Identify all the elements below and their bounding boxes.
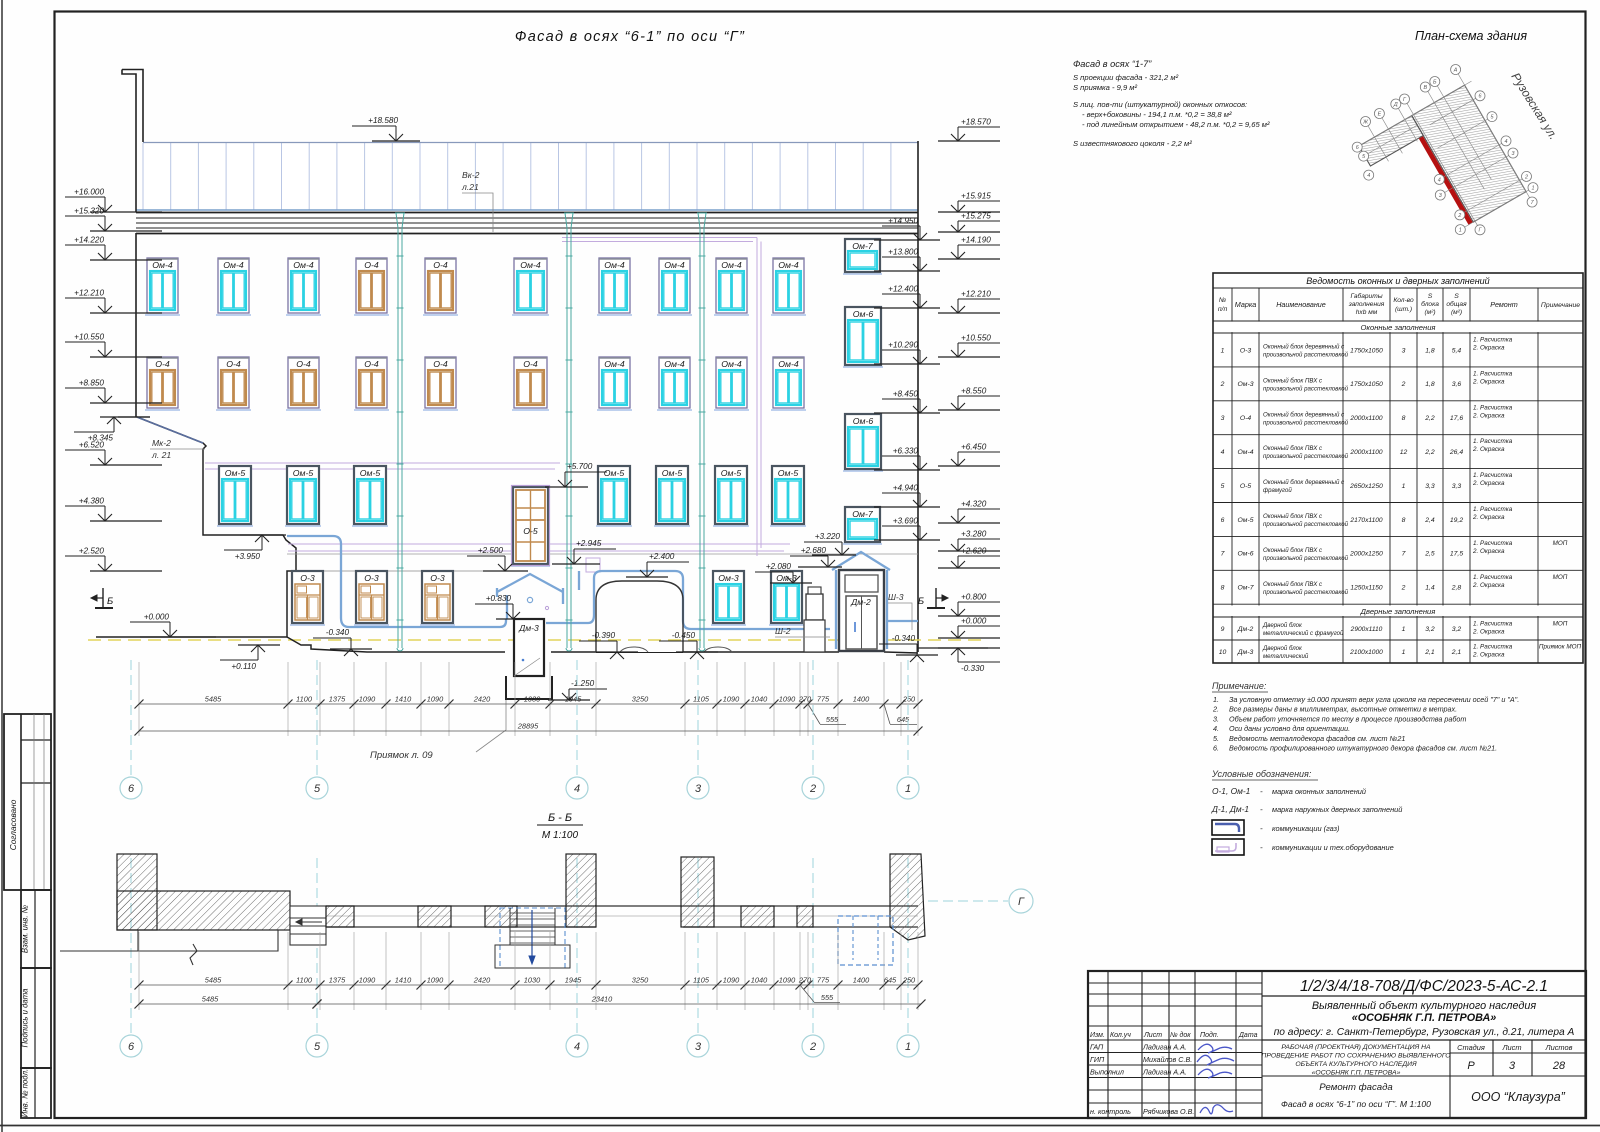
svg-text:1030: 1030 [524,695,541,704]
svg-text:Дата: Дата [1238,1032,1258,1039]
svg-text:+3.950: +3.950 [235,552,261,561]
svg-text:Р: Р [1467,1060,1475,1072]
svg-text:Ведомость оконных и дверных: Ведомость оконных и дверных заполнений [1306,276,1489,286]
svg-text:hхb мм: hхb мм [1356,309,1378,316]
svg-text:2: 2 [809,783,816,795]
svg-text:23410: 23410 [591,995,613,1004]
svg-text:Ом-7: Ом-7 [852,509,874,519]
svg-text:ГИП: ГИП [1090,1055,1105,1064]
svg-text:Оси даны условно для ориентаци: Оси даны условно для ориентации. [1229,724,1350,733]
svg-text:2. Окраска: 2. Окраска [1472,629,1505,636]
svg-text:- под линейным открытием: - под линейным открытием - 48,2 п.м. *0,… [1082,120,1270,129]
svg-text:1: 1 [1221,347,1225,354]
svg-text:Б: Б [1433,79,1437,85]
svg-text:Ш-3: Ш-3 [888,592,904,602]
svg-text:Примечание:: Примечание: [1212,681,1267,691]
svg-text:О-4: О-4 [226,359,241,369]
svg-text:26,4: 26,4 [1449,449,1463,456]
svg-text:ПРОВЕДЕНИЕ РАБОТ ПО СОХРАНЕНИЮ: ПРОВЕДЕНИЕ РАБОТ ПО СОХРАНЕНИЮ ВЫЯВЛЕННО… [1261,1053,1451,1060]
svg-text:Д: Д [1393,102,1398,108]
svg-text:3: 3 [1512,151,1515,157]
svg-text:О-1, Ом-1: О-1, Ом-1 [1212,786,1250,796]
svg-text:ООО “Клаузура”: ООО “Клаузура” [1471,1090,1566,1104]
svg-text:Д-1, Дм-1: Д-1, Дм-1 [1211,804,1249,814]
svg-text:Ремонт: Ремонт [1490,300,1518,309]
svg-text:2: 2 [1401,585,1406,592]
svg-text:произвольной расстекловкой: произвольной расстекловкой [1263,419,1349,426]
svg-text:Е: Е [1378,111,1382,117]
svg-text:Дверные заполнения: Дверные заполнения [1360,607,1436,616]
svg-text:+12.400: +12.400 [888,285,918,294]
svg-text:6: 6 [1221,517,1225,524]
svg-text:марка оконных заполнений: марка оконных заполнений [1272,787,1366,796]
svg-text:Ом-4: Ом-4 [152,260,173,270]
svg-text:Фасад в осях “6-1” по оси: Фасад в осях “6-1” по оси “Г”. М 1:100 [1281,1099,1431,1109]
svg-text:РАБОЧАЯ (ПРОЕКТНАЯ) ДОКУМЕНТАЦ: РАБОЧАЯ (ПРОЕКТНАЯ) ДОКУМЕНТАЦИЯ НА [1281,1044,1431,1051]
svg-text:1100: 1100 [296,976,313,985]
svg-text:Ремонт фасада: Ремонт фасада [1319,1082,1393,1093]
svg-text:2. Окраска: 2. Окраска [1472,514,1505,521]
svg-text:+14.950: +14.950 [888,217,918,226]
svg-text:1105: 1105 [693,976,710,985]
svg-text:фрамугой: фрамугой [1263,487,1292,494]
svg-text:1. Расчистка: 1. Расчистка [1473,621,1513,628]
svg-text:-: - [1260,843,1263,852]
svg-text:12: 12 [1400,449,1408,456]
svg-text:+6.330: +6.330 [893,447,919,456]
svg-text:Ведомость металлодекора фасадо: Ведомость металлодекора фасадов см. лист… [1229,734,1405,743]
svg-text:3: 3 [1509,1060,1516,1072]
svg-text:Дм-2: Дм-2 [1237,626,1254,633]
svg-text:Михайлов С.В.: Михайлов С.В. [1143,1055,1192,1064]
svg-text:+2.080: +2.080 [766,562,792,571]
svg-text:Дверной блок: Дверной блок [1262,622,1303,629]
svg-text:Ом-5: Ом-5 [662,468,683,478]
svg-text:Оконный блок деревянный с: Оконный блок деревянный с [1263,479,1344,486]
svg-text:3.: 3. [1213,714,1219,723]
svg-text:Приямок МОП: Приямок МОП [1539,644,1582,651]
svg-text:2.: 2. [1212,705,1219,714]
svg-text:2: 2 [1401,381,1406,388]
svg-text:2,4: 2,4 [1424,517,1435,524]
svg-text:5: 5 [314,1041,321,1053]
svg-text:А: А [1453,67,1458,73]
svg-text:2. Окраска: 2. Окраска [1472,548,1505,555]
svg-text:Лист: Лист [1501,1043,1521,1052]
svg-text:Дм-3: Дм-3 [1237,649,1254,656]
svg-text:1. Расчистка: 1. Расчистка [1473,644,1513,651]
svg-text:Взам. инв. №: Взам. инв. № [21,905,30,953]
svg-text:+18.580: +18.580 [368,116,398,125]
svg-text:Вк-2: Вк-2 [462,170,480,180]
svg-text:Оконный блок ПВХ с: Оконный блок ПВХ с [1263,445,1322,452]
svg-text:+4.380: +4.380 [79,497,105,506]
svg-text:3,3: 3,3 [1452,483,1462,490]
svg-text:+2.400: +2.400 [649,552,675,561]
svg-text:Фасад в осях “1-7”: Фасад в осях “1-7” [1073,59,1152,69]
svg-text:Ом-4: Ом-4 [604,359,625,369]
svg-text:3: 3 [1439,193,1442,199]
svg-text:2000х1100: 2000х1100 [1349,449,1382,456]
svg-text:1: 1 [905,783,911,795]
svg-text:Оконный блок ПВХ с: Оконный блок ПВХ с [1263,547,1322,554]
svg-text:+15.320: +15.320 [74,207,104,216]
svg-text:2. Окраска: 2. Окраска [1472,378,1505,385]
svg-text:5485: 5485 [205,695,222,704]
svg-text:+4.940: +4.940 [893,484,919,493]
svg-text:+6.450: +6.450 [961,443,987,452]
svg-text:Ом-6: Ом-6 [853,309,874,319]
svg-text:+8.850: +8.850 [79,379,105,388]
svg-text:1. Расчистка: 1. Расчистка [1473,506,1513,513]
svg-text:О-3: О-3 [300,573,315,583]
svg-text:3: 3 [695,1041,702,1053]
svg-text:2. Окраска: 2. Окраска [1472,582,1505,589]
svg-text:О-4: О-4 [364,260,379,270]
svg-text:6.: 6. [1213,744,1219,753]
svg-text:1: 1 [1402,649,1406,656]
svg-text:17,6: 17,6 [1450,415,1463,422]
svg-text:по адресу: г. Санкт-Петербург,: по адресу: г. Санкт-Петербург, Рузовская… [1274,1026,1575,1038]
svg-text:марка наружных дверных запо: марка наружных дверных заполнений [1272,805,1402,814]
svg-text:+2.500: +2.500 [478,546,504,555]
svg-text:План-схема здания: План-схема здания [1415,29,1527,43]
svg-text:3250: 3250 [632,976,649,985]
svg-text:+2.620: +2.620 [961,547,987,556]
svg-text:-0.340: -0.340 [326,628,350,637]
svg-text:3,6: 3,6 [1452,381,1462,388]
svg-text:1. Расчистка: 1. Расчистка [1473,438,1513,445]
svg-text:+5.700: +5.700 [567,462,593,471]
svg-text:28895: 28895 [517,722,539,731]
svg-text:S: S [1428,293,1433,300]
svg-text:-1.250: -1.250 [571,679,595,688]
svg-text:Мк-2: Мк-2 [152,438,171,448]
svg-text:775: 775 [817,976,830,985]
svg-text:1090: 1090 [779,695,796,704]
svg-text:Ом-4: Ом-4 [223,260,244,270]
svg-text:+3.280: +3.280 [961,530,987,539]
svg-text:+0.000: +0.000 [961,617,987,626]
svg-text:2420: 2420 [473,695,491,704]
svg-text:Ом-5: Ом-5 [293,468,314,478]
svg-text:+12.210: +12.210 [961,290,991,299]
svg-text:250: 250 [902,976,916,985]
svg-text:1090: 1090 [723,695,740,704]
svg-text:металлический: металлический [1263,653,1309,660]
svg-text:-: - [1260,824,1263,833]
svg-text:1030: 1030 [524,976,541,985]
svg-text:Ом-4: Ом-4 [721,260,742,270]
svg-text:+14.220: +14.220 [74,236,104,245]
svg-text:4: 4 [1367,173,1370,179]
svg-text:+10.550: +10.550 [961,334,991,343]
svg-text:металлический с фрамугой: металлический с фрамугой [1263,630,1344,637]
svg-text:Оконный блок ПВХ с: Оконный блок ПВХ с [1263,513,1322,520]
svg-text:5,4: 5,4 [1452,347,1462,354]
svg-text:(м²): (м²) [1451,309,1462,316]
svg-text:л.21: л.21 [461,182,479,192]
svg-text:1. Расчистка: 1. Расчистка [1473,337,1513,344]
svg-text:1750х1050: 1750х1050 [1350,381,1383,388]
svg-text:1: 1 [1402,483,1406,490]
svg-text:Подп.: Подп. [1200,1031,1219,1039]
svg-text:1250х1150: 1250х1150 [1350,585,1382,592]
svg-text:+15.915: +15.915 [961,192,991,201]
svg-text:1,8: 1,8 [1425,381,1435,388]
svg-text:блока: блока [1421,300,1439,308]
svg-text:1090: 1090 [723,976,740,985]
svg-text:2: 2 [809,1041,816,1053]
svg-text:1. Расчистка: 1. Расчистка [1473,370,1513,377]
svg-text:5485: 5485 [202,995,219,1004]
svg-text:О-4: О-4 [433,260,448,270]
svg-text:2: 2 [1457,213,1461,219]
svg-text:2,2: 2,2 [1424,415,1435,422]
svg-text:3: 3 [1221,415,1225,422]
svg-text:-0.450: -0.450 [672,631,696,640]
svg-text:Листов: Листов [1545,1043,1573,1052]
svg-text:О-3: О-3 [364,573,379,583]
svg-text:3,3: 3,3 [1425,483,1435,490]
svg-text:2. Окраска: 2. Окраска [1472,480,1505,487]
svg-text:775: 775 [817,695,830,704]
svg-text:1090: 1090 [359,976,376,985]
svg-text:Ом-3: Ом-3 [1238,381,1254,388]
svg-text:2,1: 2,1 [1451,649,1462,656]
svg-text:Стадия: Стадия [1457,1043,1485,1052]
svg-text:250: 250 [902,695,916,704]
svg-text:270: 270 [798,695,812,704]
svg-text:555: 555 [826,715,839,724]
svg-text:Ом-6: Ом-6 [1238,551,1254,558]
svg-text:1400: 1400 [853,695,870,704]
svg-text:Б: Б [918,596,924,607]
svg-text:+8.550: +8.550 [961,387,987,396]
svg-text:1. Расчистка: 1. Расчистка [1473,404,1513,411]
svg-text:Подпись и дата: Подпись и дата [21,988,30,1048]
svg-text:Примечание: Примечание [1541,302,1580,309]
svg-text:Ом-4: Ом-4 [721,359,742,369]
svg-text:1/2/3/4/18-708/Д/ФС/2023-5-АС-: 1/2/3/4/18-708/Д/ФС/2023-5-АС-2.1 [1300,978,1548,995]
svg-text:2. Окраска: 2. Окраска [1472,446,1505,453]
svg-text:S приямка - 9,9 м²: S приямка - 9,9 м² [1073,83,1137,92]
svg-text:Дм-2: Дм-2 [850,597,871,607]
svg-text:17,5: 17,5 [1450,551,1463,558]
svg-text:Наименование: Наименование [1276,300,1326,309]
svg-text:8: 8 [1402,517,1406,524]
svg-text:Б: Б [107,596,113,607]
svg-text:5485: 5485 [205,976,222,985]
svg-text:4: 4 [1438,177,1441,183]
svg-text:п/п: п/п [1218,306,1228,313]
svg-text:2. Окраска: 2. Окраска [1472,345,1505,352]
svg-text:6: 6 [128,783,135,795]
svg-text:9: 9 [1221,626,1225,633]
svg-text:1090: 1090 [359,695,376,704]
svg-text:Дверной блок: Дверной блок [1262,645,1303,652]
svg-text:6: 6 [1356,145,1359,151]
svg-text:Ведомость профилированного шту: Ведомость профилированного штукатурного … [1229,744,1497,753]
svg-text:2. Окраска: 2. Окраска [1472,412,1505,419]
svg-text:+13.800: +13.800 [888,248,918,257]
svg-text:ОБЪЕКТА КУЛЬТУРНОГО НАСЛЕДИЯ: ОБЪЕКТА КУЛЬТУРНОГО НАСЛЕДИЯ [1295,1061,1417,1068]
svg-text:+4.320: +4.320 [961,500,987,509]
svg-text:Ом-4: Ом-4 [1238,449,1254,456]
svg-text:1100: 1100 [296,695,313,704]
svg-text:-0.330: -0.330 [961,664,985,673]
svg-text:2,8: 2,8 [1451,585,1462,592]
svg-text:2420: 2420 [473,976,491,985]
svg-text:л. 21: л. 21 [151,450,171,460]
svg-text:Ом-5: Ом-5 [360,468,381,478]
svg-text:1: 1 [1402,626,1406,633]
svg-text:О-4: О-4 [155,359,170,369]
svg-text:5: 5 [314,783,321,795]
svg-text:Ом-7: Ом-7 [1238,585,1254,592]
svg-text:Дм-3: Дм-3 [518,623,539,633]
svg-text:коммуникации (газ): коммуникации (газ) [1272,824,1340,833]
svg-text:2000х1100: 2000х1100 [1349,415,1382,422]
svg-text:произвольной расстекловкой: произвольной расстекловкой [1263,385,1349,392]
svg-text:н. контроль: н. контроль [1090,1107,1131,1116]
svg-text:270: 270 [798,976,812,985]
svg-text:Лист: Лист [1143,1032,1162,1039]
svg-text:+3.690: +3.690 [893,517,919,526]
svg-text:Ом-4: Ом-4 [778,260,799,270]
svg-text:О-4: О-4 [523,359,538,369]
svg-text:1. Расчистка: 1. Расчистка [1473,574,1513,581]
svg-text:Ом-4: Ом-4 [520,260,541,270]
svg-text:+18.570: +18.570 [961,118,991,127]
svg-text:1: 1 [1532,186,1535,192]
svg-text:Ом-4: Ом-4 [664,260,685,270]
svg-text:Ом-4: Ом-4 [778,359,799,369]
svg-text:Ладиган А.А.: Ладиган А.А. [1142,1068,1187,1077]
svg-text:+15.275: +15.275 [961,212,991,221]
svg-text:-0.390: -0.390 [592,631,616,640]
svg-text:3: 3 [1402,347,1406,354]
svg-text:+6.520: +6.520 [79,441,105,450]
svg-text:2: 2 [1220,381,1225,388]
svg-text:заполнения: заполнения [1348,301,1385,308]
svg-text:8: 8 [1221,585,1225,592]
svg-text:+0.830: +0.830 [486,594,512,603]
svg-text:28: 28 [1552,1060,1566,1072]
svg-text:2650х1250: 2650х1250 [1349,483,1383,490]
svg-text:+2.945: +2.945 [576,539,602,548]
svg-text:2,5: 2,5 [1424,551,1435,558]
svg-text:Оконный блок ПВХ с: Оконный блок ПВХ с [1263,581,1322,588]
svg-text:+10.290: +10.290 [888,341,918,350]
svg-text:1. Расчистка: 1. Расчистка [1473,540,1513,547]
svg-text:(м²): (м²) [1424,309,1435,316]
svg-text:М 1:100: М 1:100 [542,830,579,841]
svg-text:произвольной расстекловкой: произвольной расстекловкой [1263,351,1349,358]
svg-text:+12.210: +12.210 [74,289,104,298]
svg-text:1090: 1090 [427,695,444,704]
svg-text:7: 7 [1402,551,1406,558]
svg-text:1: 1 [1459,228,1462,234]
svg-text:+8.450: +8.450 [893,390,919,399]
svg-text:6: 6 [1479,94,1482,100]
svg-text:Ладиган А.А.: Ладиган А.А. [1142,1043,1187,1052]
svg-text:+0.110: +0.110 [231,662,256,671]
svg-text:2000х1250: 2000х1250 [1349,551,1383,558]
svg-text:произвольной расстекловкой: произвольной расстекловкой [1263,555,1349,562]
svg-text:О-4: О-4 [364,359,379,369]
svg-text:1,4: 1,4 [1425,585,1435,592]
svg-text:1: 1 [905,1041,911,1053]
svg-text:2170х1100: 2170х1100 [1349,517,1382,524]
svg-text:2,1: 2,1 [1424,649,1435,656]
svg-text:Выполнил: Выполнил [1090,1068,1124,1077]
svg-text:S проекции фасада - 321,2 м²: S проекции фасада - 321,2 м² [1073,73,1179,82]
svg-text:МОП: МОП [1553,621,1568,628]
svg-text:1375: 1375 [329,695,346,704]
svg-text:№: № [1219,297,1226,304]
svg-text:+16.000: +16.000 [74,188,104,197]
svg-text:Марка: Марка [1235,300,1256,309]
svg-text:Условные обозначения:: Условные обозначения: [1211,769,1312,779]
svg-text:1. Расчистка: 1. Расчистка [1473,472,1513,479]
svg-text:1040: 1040 [751,976,768,985]
svg-text:1375: 1375 [329,976,346,985]
svg-text:О-4: О-4 [296,359,311,369]
svg-text:4.: 4. [1213,724,1219,733]
svg-text:+0.000: +0.000 [144,613,170,622]
svg-text:В: В [1423,85,1427,91]
svg-text:1090: 1090 [779,976,796,985]
svg-text:Рябчикова О.В.: Рябчикова О.В. [1143,1107,1194,1116]
svg-text:1750х1050: 1750х1050 [1350,347,1383,354]
svg-text:3250: 3250 [632,695,649,704]
svg-text:3,2: 3,2 [1425,626,1435,633]
svg-text:Изм.: Изм. [1090,1032,1105,1039]
svg-text:S: S [1454,293,1459,300]
svg-text:Согласовано: Согласовано [8,799,18,850]
svg-text:5: 5 [1221,483,1225,490]
svg-text:Фасад в осях “6-1” по оси: Фасад в осях “6-1” по оси “Г” [515,29,745,45]
svg-text:1040: 1040 [751,695,768,704]
svg-text:Оконные заполнения: Оконные заполнения [1361,323,1436,332]
svg-text:«ОСОБНЯК Г.П. ПЕТРОВА»: «ОСОБНЯК Г.П. ПЕТРОВА» [1352,1012,1497,1024]
svg-text:Оконный блок деревянный с: Оконный блок деревянный с [1263,343,1344,350]
svg-text:Ом-5: Ом-5 [778,468,799,478]
svg-text:1,8: 1,8 [1425,347,1435,354]
svg-text:Б - Б: Б - Б [548,812,572,824]
svg-text:произвольной расстекловкой: произвольной расстекловкой [1263,453,1349,460]
svg-text:-: - [1260,787,1263,796]
svg-text:7: 7 [1221,551,1225,558]
svg-text:3: 3 [695,783,702,795]
svg-text:S лиц. пов-ти (штукатурной) ок: S лиц. пов-ти (штукатурной) оконных отко… [1073,100,1247,109]
svg-text:МОП: МОП [1553,574,1568,581]
svg-text:О-4: О-4 [1240,415,1252,422]
svg-text:Ом-4: Ом-4 [604,260,625,270]
svg-text:Г: Г [1018,896,1025,908]
svg-text:Ом-5: Ом-5 [721,468,742,478]
svg-text:2900х1110: 2900х1110 [1350,626,1383,633]
svg-text:общая: общая [1446,300,1467,308]
svg-text:1090: 1090 [427,976,444,985]
svg-text:1.: 1. [1213,695,1219,704]
svg-text:ГАП: ГАП [1090,1043,1104,1052]
svg-text:МОП: МОП [1553,540,1568,547]
svg-text:6: 6 [128,1041,135,1053]
svg-text:Кол.уч: Кол.уч [1110,1032,1131,1039]
svg-text:О-3: О-3 [430,573,445,583]
